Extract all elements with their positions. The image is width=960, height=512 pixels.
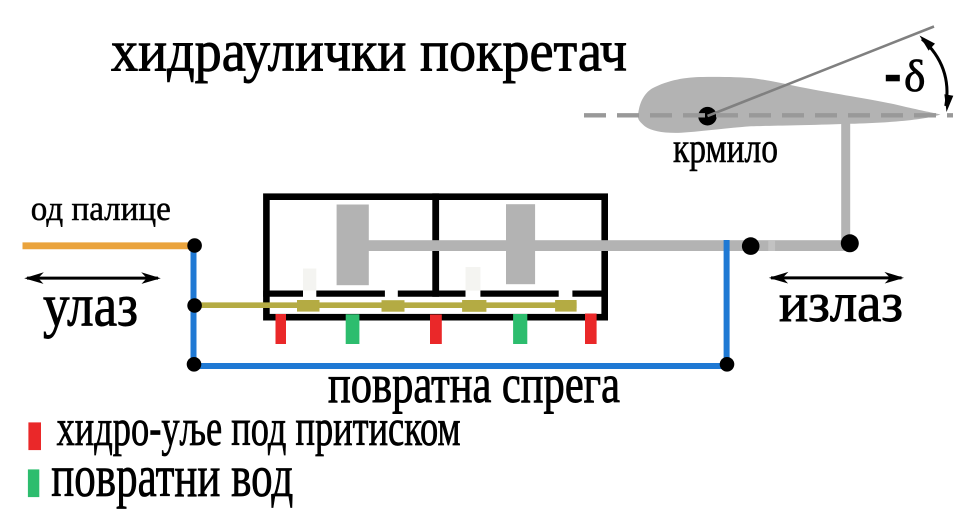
svg-text:хидраулички покретач: хидраулички покретач [111,19,627,84]
svg-text:повратни вод: повратни вод [51,443,293,509]
svg-text:од палице: од палице [31,189,171,228]
svg-text:δ: δ [904,52,926,101]
svg-text:излаз: излаз [779,272,903,333]
svg-text:крмило: крмило [673,126,778,172]
svg-text:улаз: улаз [43,273,138,339]
